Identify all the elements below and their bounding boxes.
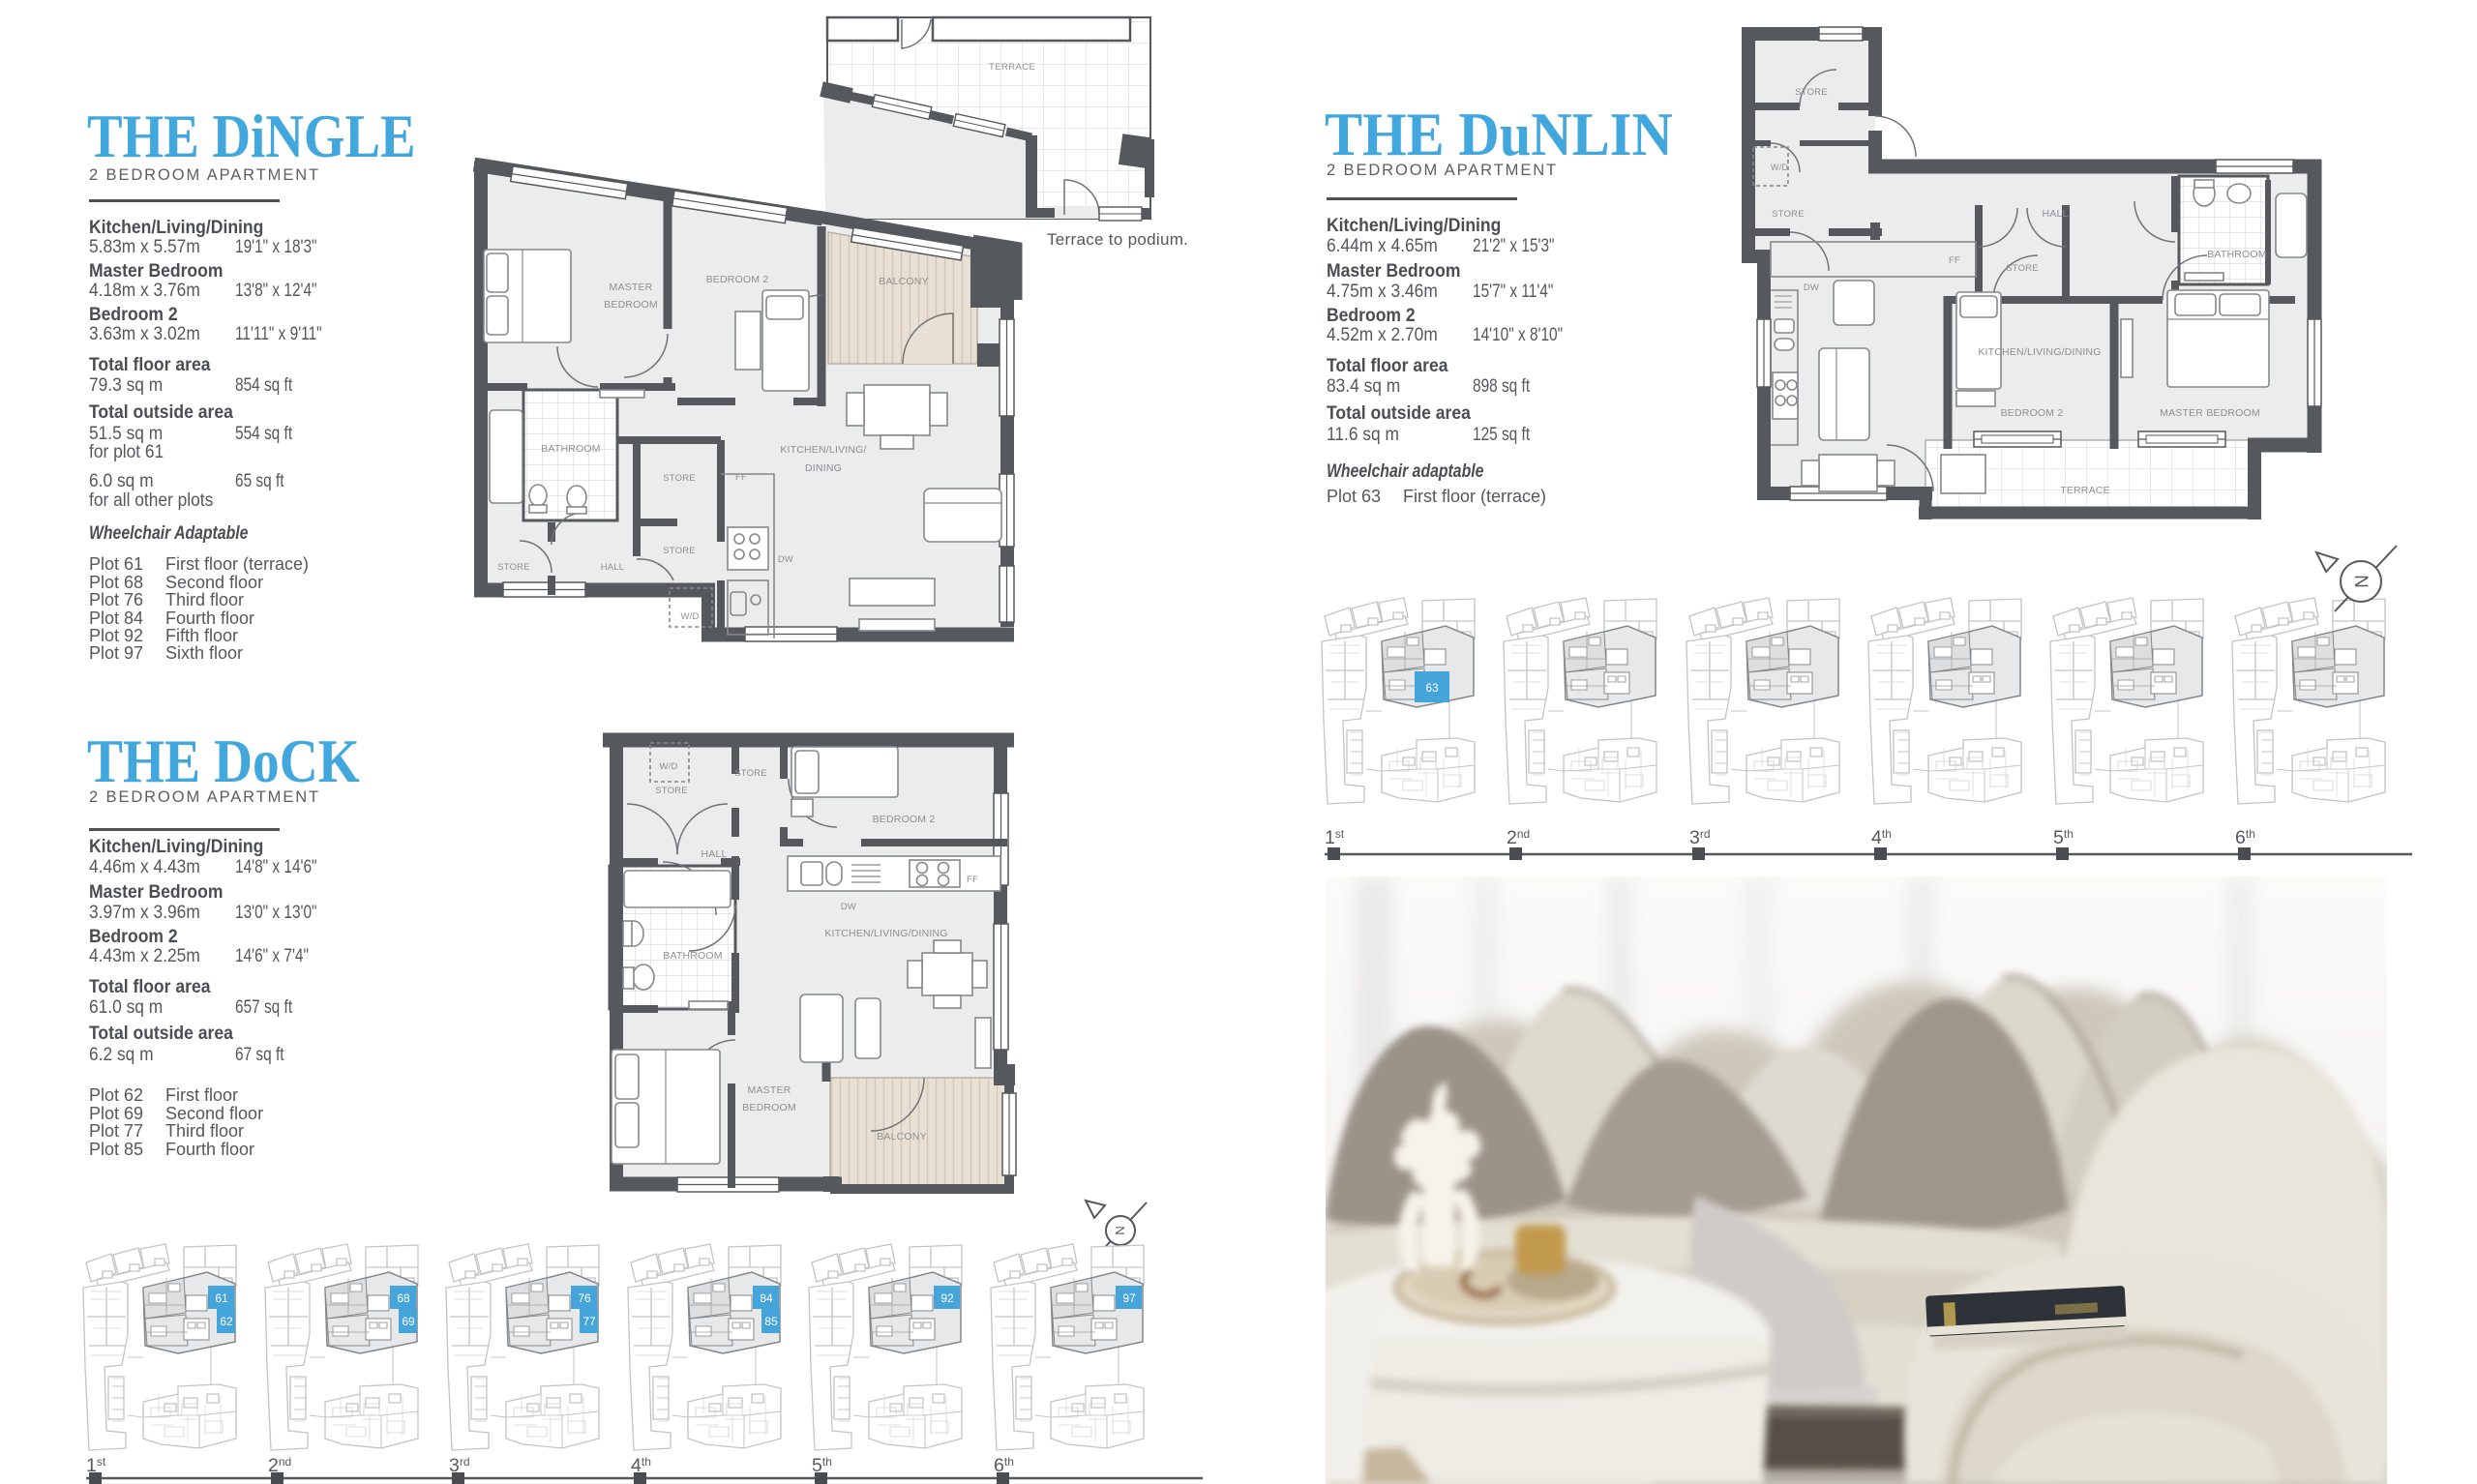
svg-text:92: 92 [940, 1291, 954, 1305]
svg-text:FF: FF [1949, 255, 1960, 266]
svg-text:2nd: 2nd [1507, 827, 1530, 848]
svg-text:HALL: HALL [2042, 208, 2068, 220]
svg-text:STORE: STORE [2006, 263, 2039, 274]
svg-text:63: 63 [1425, 681, 1439, 695]
svg-text:KITCHEN/LIVING/DINING: KITCHEN/LIVING/DINING [1978, 346, 2101, 358]
svg-text:TERRACE: TERRACE [2060, 485, 2110, 496]
svg-text:62: 62 [220, 1315, 233, 1328]
svg-text:BATHROOM: BATHROOM [2207, 249, 2267, 260]
svg-text:69: 69 [402, 1315, 415, 1328]
svg-text:4th: 4th [1871, 827, 1892, 848]
svg-text:MASTER BEDROOM: MASTER BEDROOM [2160, 407, 2260, 419]
svg-text:TERRACE: TERRACE [989, 62, 1035, 73]
svg-text:FF: FF [735, 472, 747, 483]
svg-text:1st: 1st [1325, 827, 1345, 848]
svg-text:61: 61 [215, 1291, 228, 1305]
svg-text:77: 77 [582, 1315, 596, 1328]
svg-text:76: 76 [578, 1291, 591, 1305]
svg-text:6th: 6th [2235, 827, 2255, 848]
svg-text:BEDROOM: BEDROOM [604, 299, 658, 311]
svg-text:97: 97 [1122, 1291, 1136, 1305]
svg-text:KITCHEN/LIVING/: KITCHEN/LIVING/ [780, 444, 866, 456]
svg-text:BATHROOM: BATHROOM [541, 443, 601, 455]
svg-text:STORE: STORE [1795, 87, 1828, 98]
svg-text:BEDROOM 2: BEDROOM 2 [2001, 407, 2064, 419]
svg-text:3rd: 3rd [1689, 827, 1711, 848]
svg-text:84: 84 [760, 1291, 773, 1305]
svg-text:STORE: STORE [663, 473, 696, 484]
svg-text:68: 68 [397, 1291, 410, 1305]
svg-text:DW: DW [1804, 282, 1819, 293]
svg-text:W/D: W/D [1771, 163, 1788, 172]
svg-text:BALCONY: BALCONY [879, 276, 929, 287]
svg-text:5th: 5th [2053, 827, 2074, 848]
svg-text:BEDROOM 2: BEDROOM 2 [706, 274, 769, 285]
svg-text:85: 85 [764, 1315, 778, 1328]
svg-text:STORE: STORE [1772, 209, 1805, 220]
svg-text:MASTER: MASTER [610, 282, 653, 293]
svg-text:DINING: DINING [805, 462, 842, 474]
